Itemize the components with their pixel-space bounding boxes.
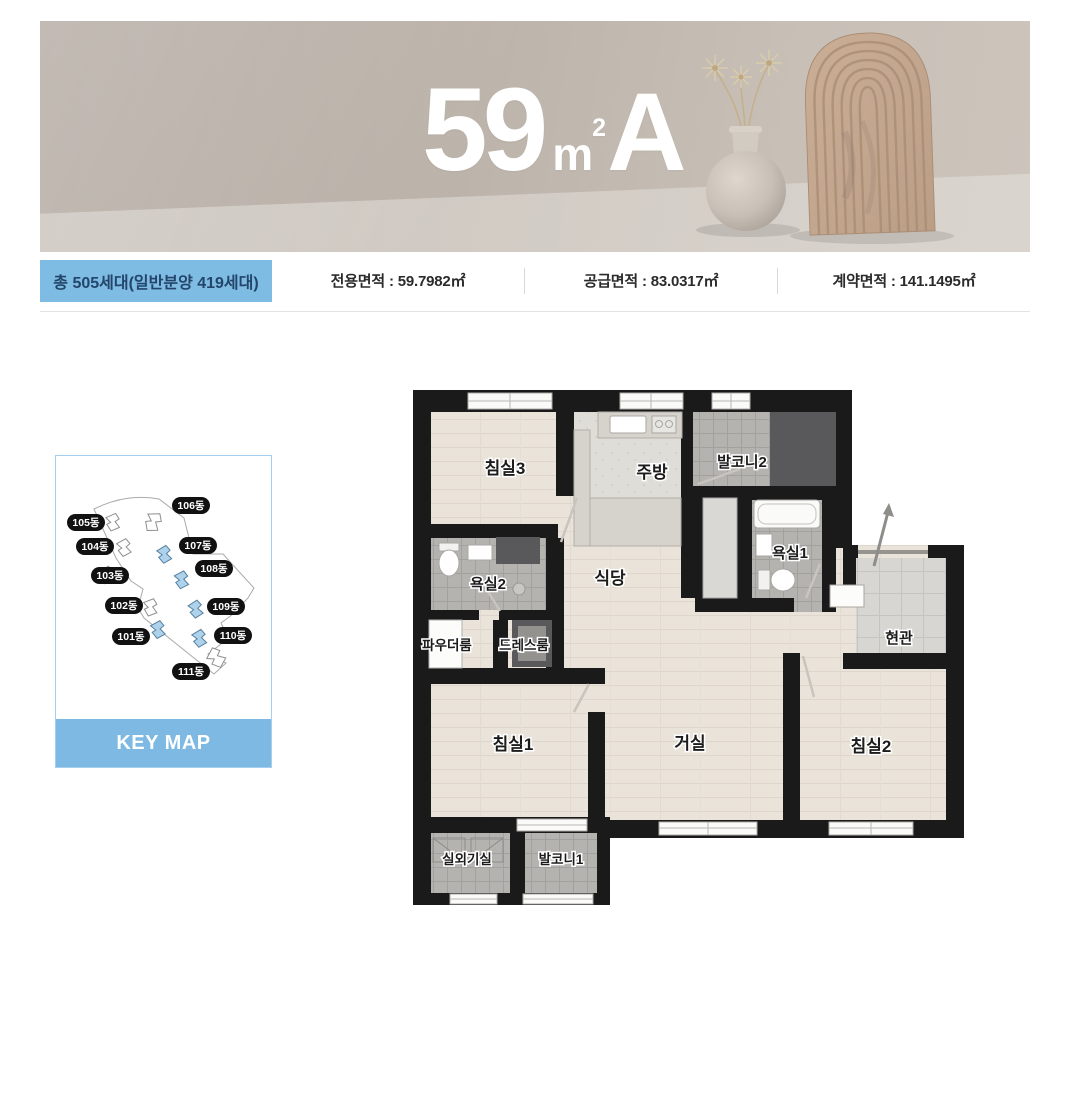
bath2-door-gap (479, 610, 499, 620)
horizontal-rule (40, 311, 1030, 312)
arch-decor (803, 31, 935, 235)
building-label-pill: 110동 (214, 627, 252, 644)
building-labels: 105동 106동 104동 107동 103동 108동 102동 109동 … (67, 497, 252, 680)
room-label-dress: 드레스룸 (499, 638, 549, 653)
room-label-bedroom2: 침실2 (851, 736, 892, 756)
room-label-entrance: 현관 (885, 630, 913, 647)
building-label-pill: 102동 (105, 597, 143, 614)
svg-text:110동: 110동 (220, 630, 247, 642)
household-count-badge: 총 505세대(일반분양 419세대) (40, 260, 272, 302)
vase-decor (702, 50, 786, 231)
room-label-ac-room: 실외기실 (442, 851, 492, 867)
page: 59 m2 A 총 505세대(일반분양 419세대) 전용면적 : 59.79… (0, 0, 1080, 1097)
balcony2-floor (693, 412, 770, 488)
building-label-pill: 106동 (172, 497, 210, 514)
room-label-powder: 파우더룸 (422, 638, 472, 653)
contract-area: 계약면적 : 141.1495㎡ (778, 270, 1030, 291)
room-label-bath1: 욕실1 (772, 545, 808, 562)
building-label-pill: 111동 (172, 663, 210, 680)
building-label-pill: 109동 (207, 598, 245, 615)
keymap-title-bar: KEY MAP (56, 719, 271, 767)
other-buildings (96, 508, 228, 671)
svg-text:106동: 106동 (177, 500, 205, 512)
flower-head (702, 55, 728, 81)
flower-head (730, 66, 752, 88)
shoe-cabinet (830, 585, 864, 607)
building-label-pill: 108동 (195, 560, 233, 577)
site-boundary (94, 497, 254, 674)
building-label-pill: 104동 (76, 538, 114, 555)
unit-size-unit: m2 (552, 131, 605, 177)
keymap-panel: 105동 106동 104동 107동 103동 108동 102동 109동 … (55, 455, 272, 768)
room-label-balcony2: 발코니2 (717, 454, 767, 471)
room-label-bedroom3: 침실3 (485, 458, 526, 478)
exclusive-area: 전용면적 : 59.7982㎡ (272, 270, 524, 291)
keymap-drawing: 105동 106동 104동 107동 103동 108동 102동 109동 … (56, 456, 271, 719)
unit-type-title: 59 m2 A (422, 71, 687, 189)
svg-text:107동: 107동 (184, 540, 212, 552)
svg-text:109동: 109동 (212, 601, 240, 613)
area-info-bar: 총 505세대(일반분양 419세대) 전용면적 : 59.7982㎡ 공급면적… (40, 259, 1030, 302)
flower-head (756, 50, 782, 76)
room-label-kitchen: 주방 (636, 463, 668, 482)
svg-text:103동: 103동 (96, 570, 124, 582)
highlighted-buildings (148, 544, 208, 649)
utility-dark-block (770, 405, 838, 491)
room-label-dining: 식당 (594, 569, 626, 588)
building-label-pill: 103동 (91, 567, 129, 584)
building-label-pill: 107동 (179, 537, 217, 554)
svg-text:111동: 111동 (178, 666, 204, 678)
building-label-pill: 101동 (112, 628, 150, 645)
unit-size-superscript: 2 (592, 116, 605, 141)
room-label-living: 거실 (674, 734, 705, 753)
svg-text:101동: 101동 (117, 631, 145, 643)
unit-type-variant: A (607, 78, 686, 188)
svg-text:104동: 104동 (81, 541, 109, 553)
building-label-pill: 105동 (67, 514, 105, 531)
room-label-balcony1: 발코니1 (539, 851, 584, 867)
hall-closet (703, 498, 737, 598)
supply-area: 공급면적 : 83.0317㎡ (525, 270, 777, 291)
unit-size-number: 59 (422, 71, 543, 189)
svg-text:105동: 105동 (72, 517, 100, 529)
room-label-bath2: 욕실2 (470, 576, 506, 593)
floorplan: 침실3 주방 발코니2 욕실1 현관 식당 욕실2 파우더룸 드레스룸 침실1 … (410, 385, 968, 907)
svg-text:108동: 108동 (200, 563, 228, 575)
hero-banner: 59 m2 A (40, 21, 1030, 252)
room-label-bedroom1: 침실1 (493, 734, 534, 754)
svg-text:102동: 102동 (110, 600, 138, 612)
